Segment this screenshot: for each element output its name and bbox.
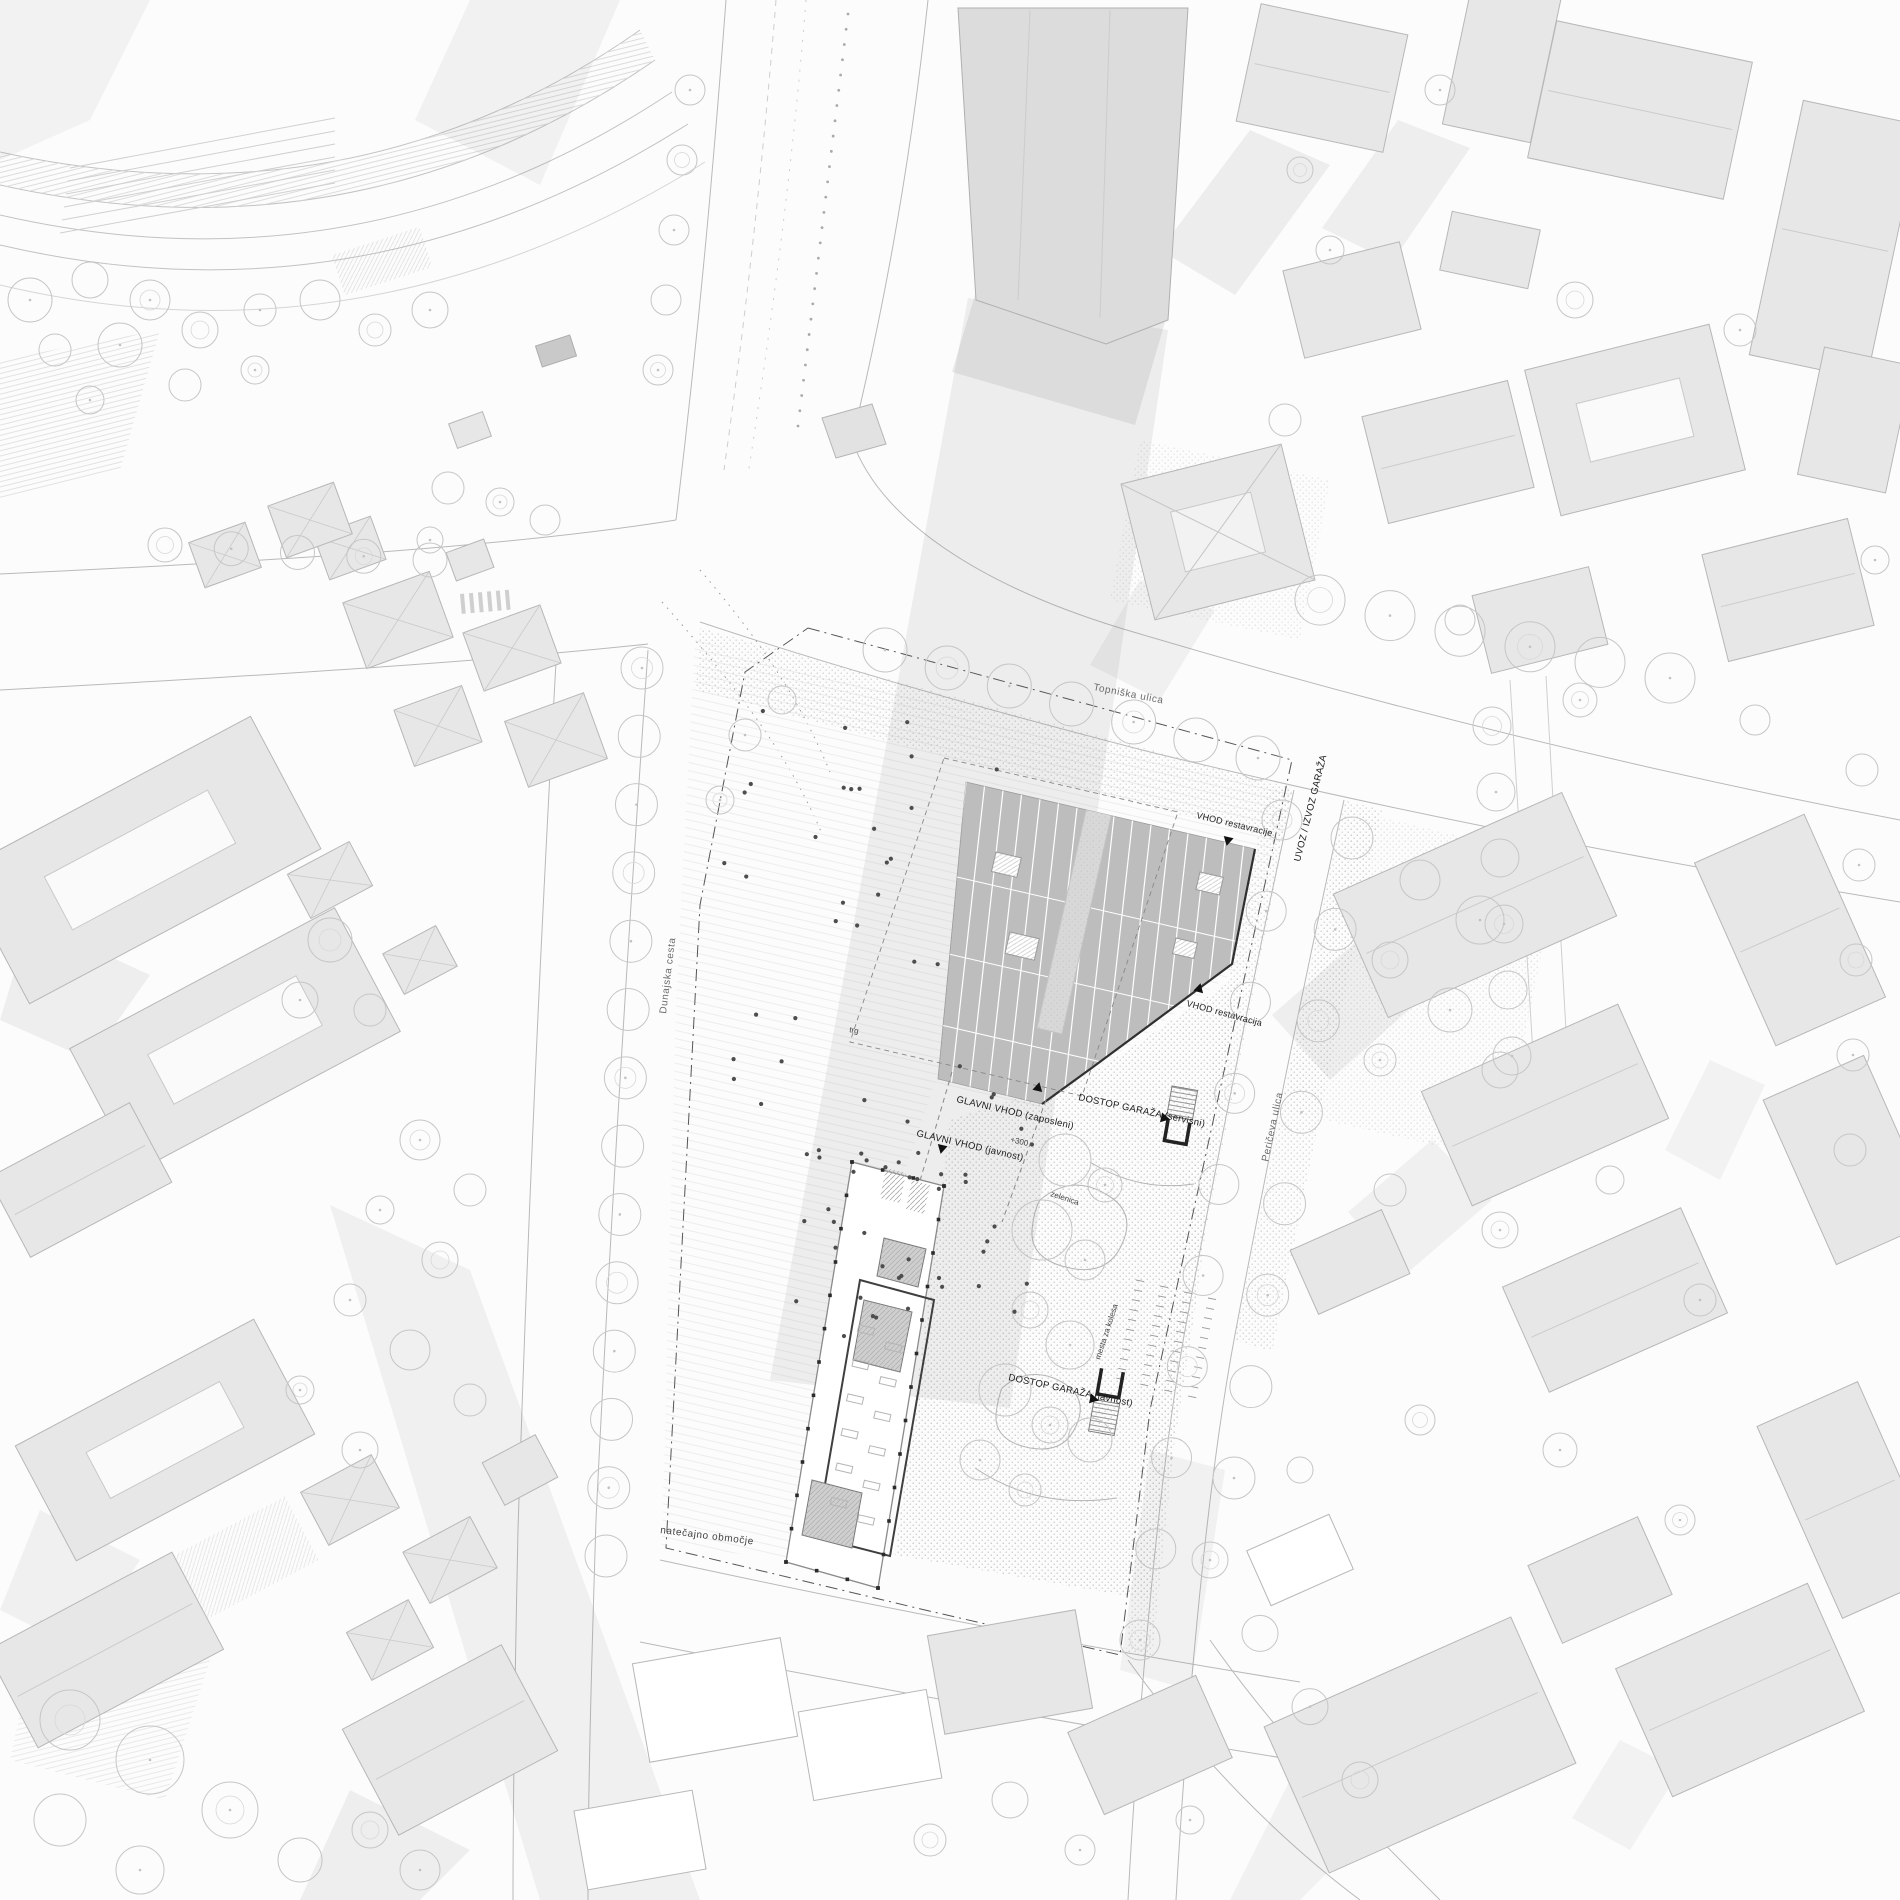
tree-center-dot xyxy=(429,539,432,542)
person-dot xyxy=(855,923,859,927)
tree-icon xyxy=(607,989,649,1031)
person-dot xyxy=(722,861,726,865)
person-dot xyxy=(754,1012,758,1016)
column-dot xyxy=(828,1294,832,1298)
building-footprint xyxy=(394,685,482,766)
building-roof xyxy=(927,1610,1092,1735)
tree-center-dot xyxy=(1379,1059,1382,1062)
person-dot xyxy=(937,1187,941,1191)
column-dot xyxy=(937,1218,941,1222)
person-dot xyxy=(759,1102,763,1106)
bollard-dot xyxy=(811,303,814,306)
person-dot xyxy=(761,709,765,713)
person-dot xyxy=(883,1165,887,1169)
building-footprint xyxy=(1362,380,1534,523)
column-dot xyxy=(801,1460,805,1464)
person-dot xyxy=(937,1276,941,1280)
building-footprint xyxy=(1236,4,1408,153)
road-edge xyxy=(852,0,928,440)
tree-icon xyxy=(359,314,391,346)
site-plan: Topniška ulica Dunajska cesta Peričeva u… xyxy=(0,0,1900,1900)
building-roof xyxy=(1068,1675,1233,1814)
tree-center-dot xyxy=(1049,1424,1052,1427)
tree-center-dot xyxy=(429,309,432,312)
tall-building-footprint xyxy=(958,8,1188,344)
crosswalk-bar xyxy=(469,593,475,613)
tree-center-dot xyxy=(635,803,638,806)
person-dot xyxy=(981,1250,985,1254)
tree-inner-ring xyxy=(1483,717,1502,736)
small-structure xyxy=(535,335,576,367)
building-footprint xyxy=(301,1455,400,1546)
building-footprint xyxy=(1702,518,1874,661)
building-roof xyxy=(798,1689,942,1800)
person-dot xyxy=(909,806,913,810)
person-dot xyxy=(912,960,916,964)
tree-center-dot xyxy=(1439,89,1442,92)
tree-center-dot xyxy=(259,309,262,312)
parking-hatch xyxy=(332,227,432,295)
bollard-dot xyxy=(828,165,831,168)
label-dunajska-cesta: Dunajska cesta xyxy=(658,937,678,1015)
site-plan-canvas: Topniška ulica Dunajska cesta Peričeva u… xyxy=(0,0,1900,1900)
bike-stand-tick xyxy=(1192,1376,1200,1378)
person-dot xyxy=(842,1334,846,1338)
tree-icon xyxy=(300,280,340,320)
tree-icon xyxy=(591,1398,633,1440)
person-dot xyxy=(849,787,853,791)
tree-center-dot xyxy=(1852,1054,1855,1057)
tree-icon xyxy=(1473,707,1511,745)
building-footprint xyxy=(1068,1675,1233,1814)
bollard-dot xyxy=(834,119,837,122)
tree-icon xyxy=(530,505,560,535)
tree-center-dot xyxy=(229,1809,232,1812)
person-dot xyxy=(834,919,838,923)
tree-center-dot xyxy=(149,299,152,302)
tree-center-dot xyxy=(1189,1819,1192,1822)
tree-icon xyxy=(1242,1615,1278,1651)
building-roof xyxy=(449,412,492,449)
tree-inner-ring xyxy=(191,321,209,339)
tree-center-dot xyxy=(419,1139,422,1142)
person-dot xyxy=(858,1296,862,1300)
person-dot xyxy=(977,1284,981,1288)
tree-icon xyxy=(1435,606,1485,656)
tree-center-dot xyxy=(89,399,92,402)
tree-center-dot xyxy=(607,1486,610,1489)
person-dot xyxy=(876,893,880,897)
tree-center-dot xyxy=(1739,329,1742,332)
person-dot xyxy=(743,790,747,794)
person-dot xyxy=(732,1077,736,1081)
tree-center-dot xyxy=(613,1350,616,1353)
person-dot xyxy=(833,1246,837,1250)
tree-center-dot xyxy=(254,369,257,372)
tree-center-dot xyxy=(299,1389,302,1392)
building-footprint xyxy=(446,539,494,581)
tree-center-dot xyxy=(1495,791,1498,794)
tree-center-dot xyxy=(641,667,644,670)
building-footprint xyxy=(1763,1055,1900,1264)
building-roof xyxy=(1797,347,1900,493)
tree-icon xyxy=(914,1824,946,1856)
person-dot xyxy=(936,962,940,966)
building-footprint xyxy=(1757,1382,1900,1619)
person-dot xyxy=(909,754,913,758)
person-dot xyxy=(905,1119,909,1123)
tree-center-dot xyxy=(362,555,365,558)
tree-center-dot xyxy=(1069,1344,1072,1347)
crosswalk-bar xyxy=(505,590,511,610)
person-dot xyxy=(779,1059,783,1063)
tree-icon xyxy=(667,145,697,175)
tree-icon xyxy=(596,1262,638,1304)
person-dot xyxy=(915,1177,919,1181)
tree-icon xyxy=(454,1174,486,1206)
tree-center-dot xyxy=(1579,699,1582,702)
tram-line xyxy=(724,0,776,470)
person-dot xyxy=(995,767,999,771)
building-footprint xyxy=(1528,21,1753,200)
crosswalk-bar xyxy=(487,591,493,611)
building-footprint xyxy=(189,522,262,588)
person-dot xyxy=(906,1307,910,1311)
building-footprint xyxy=(1797,347,1900,493)
column-dot xyxy=(817,1360,821,1364)
building-footprint xyxy=(463,605,561,691)
tree-center-dot xyxy=(139,1869,142,1872)
tree-center-dot xyxy=(1529,646,1532,649)
bollard-dot xyxy=(832,135,835,138)
tree-icon xyxy=(1287,1457,1313,1483)
column-dot xyxy=(812,1394,816,1398)
tree-center-dot xyxy=(349,1299,352,1302)
tree-center-dot xyxy=(673,229,676,232)
tree-icon xyxy=(1174,718,1218,762)
person-dot xyxy=(908,1175,912,1179)
tree-center-dot xyxy=(1858,864,1861,867)
tree-icon xyxy=(1269,404,1301,436)
tree-center-dot xyxy=(1300,1111,1303,1114)
person-dot xyxy=(826,1207,830,1211)
tree-center-dot xyxy=(624,1077,627,1080)
column-dot xyxy=(909,1385,913,1389)
bike-stand-tick xyxy=(1208,1298,1216,1300)
person-dot xyxy=(865,1158,869,1162)
building-footprint xyxy=(1247,1514,1354,1605)
tree-icon xyxy=(1557,282,1593,318)
building-footprint xyxy=(449,412,492,449)
column-dot xyxy=(881,1168,885,1172)
tree-center-dot xyxy=(1559,1449,1562,1452)
column-dot xyxy=(815,1569,819,1573)
building-footprint xyxy=(383,926,458,995)
tree-center-dot xyxy=(119,344,122,347)
person-dot xyxy=(871,1314,875,1318)
tree-inner-ring xyxy=(1566,291,1584,309)
tree-center-dot xyxy=(1874,559,1877,562)
tree-center-dot xyxy=(299,999,302,1002)
building-footprint xyxy=(1440,211,1541,288)
building-footprint xyxy=(927,1610,1092,1735)
tree-icon xyxy=(148,528,182,562)
tram-line xyxy=(748,0,806,475)
tree-center-dot xyxy=(1679,1519,1682,1522)
bollard-dot xyxy=(802,379,805,382)
tree-icon xyxy=(1596,1166,1624,1194)
bollard-dot xyxy=(817,257,820,260)
tree-center-dot xyxy=(1499,1229,1502,1232)
crosswalk-bar xyxy=(478,592,484,612)
column-dot xyxy=(845,1194,849,1198)
tree-center-dot xyxy=(1209,1559,1212,1562)
person-dot xyxy=(897,1160,901,1164)
tree-center-dot xyxy=(230,547,233,550)
bike-stand-tick xyxy=(1206,1308,1214,1310)
person-dot xyxy=(964,1180,968,1184)
person-dot xyxy=(940,1285,944,1289)
tree-center-dot xyxy=(1669,677,1672,680)
bollard-dot xyxy=(841,58,844,61)
tree-icon xyxy=(34,1794,86,1846)
person-dot xyxy=(905,720,909,724)
building-roof xyxy=(1247,1514,1354,1605)
tree-icon xyxy=(169,369,201,401)
tree-center-dot xyxy=(630,940,633,943)
bollard-dot xyxy=(845,28,848,31)
column-dot xyxy=(876,1586,880,1590)
person-dot xyxy=(862,1231,866,1235)
bike-stand-tick xyxy=(1202,1327,1210,1329)
person-dot xyxy=(851,1170,855,1174)
tree-center-dot xyxy=(379,1209,382,1212)
tree-center-dot xyxy=(619,1213,622,1216)
building-footprint xyxy=(632,1638,797,1763)
shadow xyxy=(0,0,150,160)
tree-center-dot xyxy=(1257,757,1260,760)
building-footprint xyxy=(346,1600,433,1681)
tree-center-dot xyxy=(419,1869,422,1872)
person-dot xyxy=(862,1098,866,1102)
tree-center-dot xyxy=(1479,919,1482,922)
bollard-dot xyxy=(821,226,824,229)
building-roof xyxy=(1763,1055,1900,1264)
column-dot xyxy=(912,1176,916,1180)
person-dot xyxy=(916,1151,920,1155)
tree-inner-ring xyxy=(607,1272,628,1293)
tree-icon xyxy=(602,1125,644,1167)
tree-center-dot xyxy=(689,89,692,92)
tree-center-dot xyxy=(29,299,32,302)
tree-center-dot xyxy=(1266,1294,1269,1297)
bollard-dot xyxy=(819,241,822,244)
tree-inner-ring xyxy=(157,537,174,554)
tree-icon xyxy=(618,715,660,757)
bike-stand-tick xyxy=(1188,1396,1196,1398)
person-dot xyxy=(832,1220,836,1224)
tree-center-dot xyxy=(657,369,660,372)
building-footprint xyxy=(1749,100,1900,379)
bike-stand-tick xyxy=(1204,1318,1212,1320)
building-footprint xyxy=(505,693,608,788)
person-dot xyxy=(805,1152,809,1156)
bike-stand-tick xyxy=(1200,1337,1208,1339)
tree-inner-ring xyxy=(1308,588,1333,613)
person-dot xyxy=(872,827,876,831)
person-dot xyxy=(992,1224,996,1228)
column-dot xyxy=(931,1251,935,1255)
tree-center-dot xyxy=(1202,1274,1205,1277)
column-dot xyxy=(926,1285,930,1289)
tree-center-dot xyxy=(1079,1849,1082,1852)
tree-center-dot xyxy=(719,799,722,802)
tree-center-dot xyxy=(744,734,747,737)
person-dot xyxy=(958,1064,962,1068)
person-dot xyxy=(889,857,893,861)
tree-center-dot xyxy=(1008,685,1011,688)
tree-center-dot xyxy=(1139,1639,1142,1642)
bollard-dot xyxy=(808,333,811,336)
column-dot xyxy=(850,1160,854,1164)
road-edge xyxy=(676,0,726,520)
person-dot xyxy=(859,1151,863,1155)
tree-inner-ring xyxy=(1413,1413,1428,1428)
building-roof xyxy=(632,1638,797,1763)
person-dot xyxy=(817,1155,821,1159)
bollard-dot xyxy=(837,89,840,92)
column-dot xyxy=(882,1553,886,1557)
tree-icon xyxy=(1846,754,1878,786)
bollard-dot xyxy=(823,211,826,214)
person-dot xyxy=(802,1219,806,1223)
tree-icon xyxy=(432,472,464,504)
building-footprint xyxy=(1283,242,1421,358)
column-dot xyxy=(893,1486,897,1490)
traffic-island xyxy=(822,404,886,458)
crosswalk-bar xyxy=(496,591,502,611)
bollard-dot xyxy=(839,74,842,77)
tree-center-dot xyxy=(1309,1705,1312,1708)
bollard-dots xyxy=(797,13,850,428)
bollard-dot xyxy=(804,364,807,367)
tree-center-dot xyxy=(1132,721,1135,724)
person-dot xyxy=(1019,1127,1023,1131)
person-dot xyxy=(897,1276,901,1280)
bike-stand-tick xyxy=(1198,1347,1206,1349)
person-dot xyxy=(817,1148,821,1152)
column-dot xyxy=(795,1494,799,1498)
tree-icon xyxy=(1405,1405,1435,1435)
tree-center-dot xyxy=(884,649,887,652)
tree-icon xyxy=(1740,705,1770,735)
label-trg: trg xyxy=(849,1025,860,1036)
column-dot xyxy=(846,1578,850,1582)
person-dot xyxy=(793,1016,797,1020)
column-dot xyxy=(790,1527,794,1531)
person-dot xyxy=(813,835,817,839)
column-dot xyxy=(920,1318,924,1322)
person-dot xyxy=(857,787,861,791)
tree-center-dot xyxy=(1104,1184,1107,1187)
tree-center-dot xyxy=(1329,249,1332,252)
tree-center-dot xyxy=(1699,1299,1702,1302)
person-dot xyxy=(842,786,846,790)
bollard-dot xyxy=(847,13,850,16)
tree-inner-ring xyxy=(367,322,383,338)
column-dot xyxy=(834,1260,838,1264)
tree-center-dot xyxy=(979,1459,982,1462)
column-dot xyxy=(823,1327,827,1331)
building-roof xyxy=(1757,1382,1900,1619)
building-footprint xyxy=(798,1689,942,1800)
tree-icon xyxy=(1230,1366,1272,1408)
tree-center-dot xyxy=(149,1759,152,1762)
tree-center-dot xyxy=(1389,614,1392,617)
column-dot xyxy=(898,1452,902,1456)
tree-center-dot xyxy=(1170,1456,1173,1459)
bollard-dot xyxy=(810,318,813,321)
tree-center-dot xyxy=(499,501,502,504)
tree-icon xyxy=(72,262,108,298)
tree-icon xyxy=(182,312,218,348)
building-roof xyxy=(446,539,494,581)
person-dot xyxy=(843,726,847,730)
person-dot xyxy=(1025,1282,1029,1286)
tree-center-dot xyxy=(1334,928,1337,931)
bollard-dot xyxy=(815,272,818,275)
tree-icon xyxy=(651,285,681,315)
building-footprint xyxy=(343,571,453,668)
column-dot xyxy=(942,1184,946,1188)
seat-row-line xyxy=(70,118,335,168)
bike-stand-tick xyxy=(1196,1357,1204,1359)
bollard-dot xyxy=(826,180,829,183)
column-dot xyxy=(904,1419,908,1423)
person-dot xyxy=(1030,1142,1034,1146)
person-dot xyxy=(841,901,845,905)
person-dot xyxy=(880,1264,884,1268)
person-dot xyxy=(731,1057,735,1061)
column-dot xyxy=(784,1560,788,1564)
tree-center-dot xyxy=(1084,1259,1087,1262)
building-roof xyxy=(1528,1517,1672,1643)
bollard-dot xyxy=(798,409,801,412)
building-footprint xyxy=(1503,1208,1728,1392)
tree-icon xyxy=(278,1838,322,1882)
bollard-dot xyxy=(806,348,809,351)
person-dot xyxy=(749,782,753,786)
tree-icon xyxy=(585,1535,627,1577)
person-dot xyxy=(963,1173,967,1177)
tree-center-dot xyxy=(1265,910,1268,913)
person-dot xyxy=(885,860,889,864)
building-footprint xyxy=(1525,324,1746,516)
shadow xyxy=(1665,1060,1765,1180)
building-roof xyxy=(1440,211,1541,288)
building-roof xyxy=(1283,242,1421,358)
person-dot xyxy=(939,1172,943,1176)
person-dot xyxy=(744,874,748,878)
column-dot xyxy=(887,1519,891,1523)
tree-center-dot xyxy=(1449,1009,1452,1012)
person-dot xyxy=(907,1257,911,1261)
tree-center-dot xyxy=(1233,1092,1236,1095)
tree-center-dot xyxy=(359,1449,362,1452)
bollard-dot xyxy=(830,150,833,153)
bollard-dot xyxy=(835,104,838,107)
tree-center-dot xyxy=(1233,1477,1236,1480)
